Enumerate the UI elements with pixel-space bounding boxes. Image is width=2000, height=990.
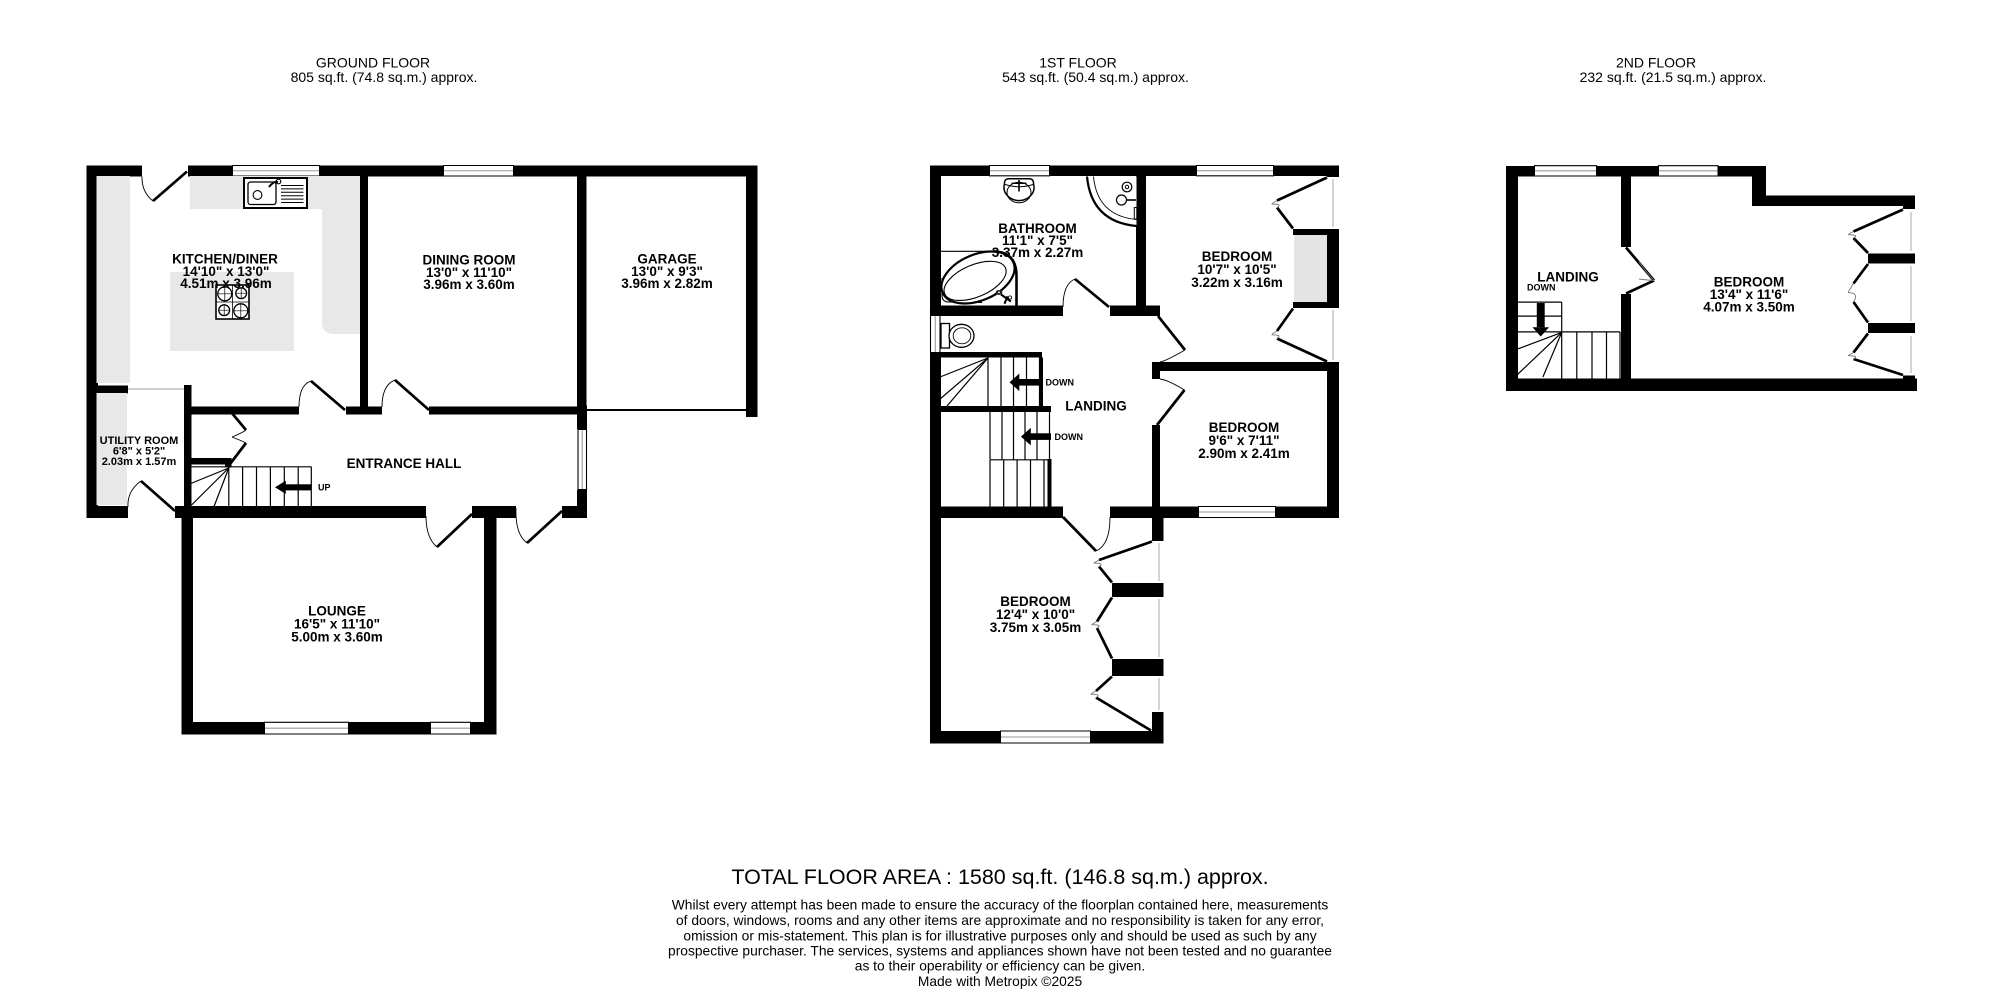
svg-text:3.96m x 2.82m: 3.96m x 2.82m [621,276,713,291]
svg-text:4.51m x 3.96m: 4.51m x 3.96m [180,276,272,291]
svg-text:3.37m x 2.27m: 3.37m x 2.27m [992,245,1084,260]
svg-text:omission or mis-statement. Thi: omission or mis-statement. This plan is … [683,928,1316,943]
svg-text:2.90m x 2.41m: 2.90m x 2.41m [1198,446,1290,461]
svg-text:UP: UP [318,483,331,493]
svg-text:3.96m x 3.60m: 3.96m x 3.60m [423,277,515,292]
svg-text:232 sq.ft. (21.5 sq.m.) approx: 232 sq.ft. (21.5 sq.m.) approx. [1580,69,1767,85]
svg-text:3.75m x 3.05m: 3.75m x 3.05m [990,620,1082,635]
svg-text:4.07m x 3.50m: 4.07m x 3.50m [1703,300,1795,315]
svg-text:ENTRANCE HALL: ENTRANCE HALL [347,456,462,471]
svg-text:TOTAL FLOOR AREA : 1580 sq.ft.: TOTAL FLOOR AREA : 1580 sq.ft. (146.8 sq… [731,865,1268,889]
svg-text:DOWN: DOWN [1046,377,1075,387]
svg-text:Whilst every attempt has been: Whilst every attempt has been made to en… [672,898,1329,913]
svg-text:prospective purchaser. The ser: prospective purchaser. The services, sys… [668,944,1332,959]
svg-text:3.22m x 3.16m: 3.22m x 3.16m [1191,275,1283,290]
svg-text:of doors, windows, rooms and a: of doors, windows, rooms and any other i… [676,913,1324,928]
svg-text:LANDING: LANDING [1065,399,1127,414]
svg-text:DOWN: DOWN [1527,283,1556,293]
svg-text:Made with Metropix ©2025: Made with Metropix ©2025 [918,974,1083,989]
svg-text:5.00m x 3.60m: 5.00m x 3.60m [291,630,383,645]
svg-text:DOWN: DOWN [1055,432,1084,442]
svg-text:543 sq.ft. (50.4 sq.m.) approx: 543 sq.ft. (50.4 sq.m.) approx. [1002,69,1189,85]
svg-text:as to their operability or eff: as to their operability or efficiency ca… [855,958,1145,973]
svg-text:2.03m x 1.57m: 2.03m x 1.57m [102,456,177,468]
svg-text:805 sq.ft. (74.8 sq.m.) approx: 805 sq.ft. (74.8 sq.m.) approx. [291,69,478,85]
